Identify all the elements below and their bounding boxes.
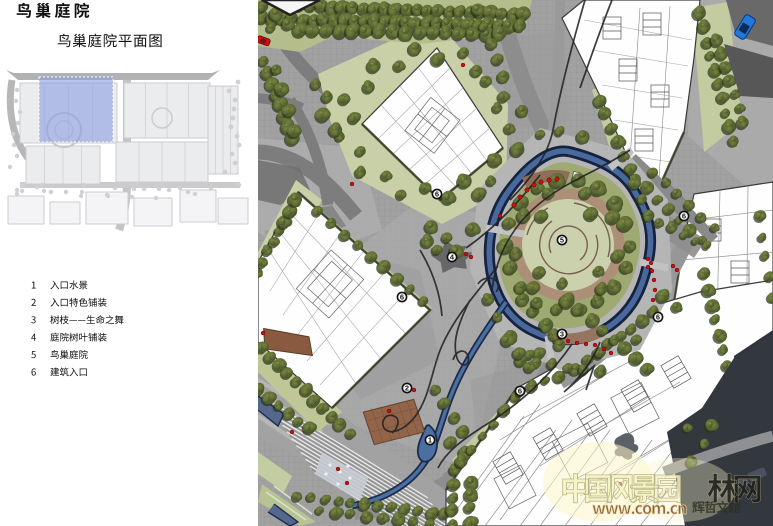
svg-text:6: 6 <box>682 212 686 221</box>
svg-text:2: 2 <box>405 384 409 393</box>
svg-text:6: 6 <box>435 190 439 199</box>
svg-text:6: 6 <box>656 313 660 322</box>
svg-text:6: 6 <box>518 387 522 396</box>
svg-text:3: 3 <box>560 330 564 339</box>
svg-text:5: 5 <box>560 236 564 245</box>
svg-text:6: 6 <box>400 293 404 302</box>
svg-text:1: 1 <box>428 436 432 445</box>
